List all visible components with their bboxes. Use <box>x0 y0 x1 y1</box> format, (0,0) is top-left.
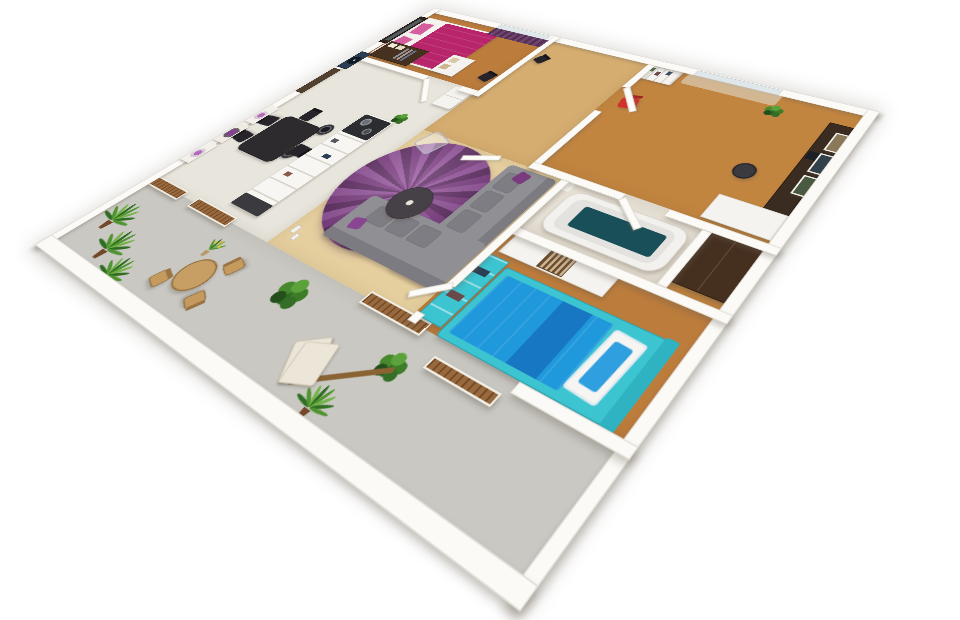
floor-plan-stage: { "scene": { "type": "3d-apartment-floor… <box>0 0 960 620</box>
door-leaf-hall <box>460 155 502 160</box>
